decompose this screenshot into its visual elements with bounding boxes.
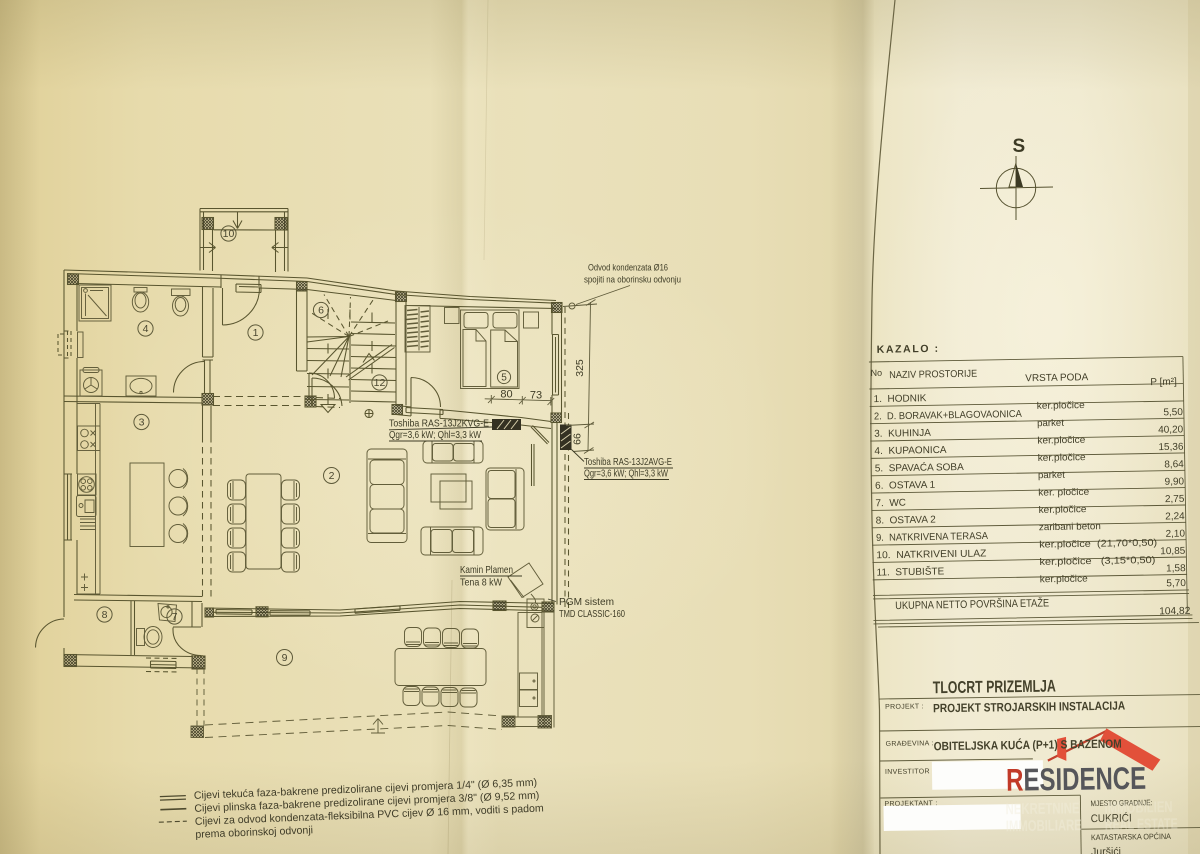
svg-text:Tena 8 kW: Tena 8 kW bbox=[460, 578, 502, 589]
svg-text:1,58: 1,58 bbox=[1166, 563, 1186, 574]
svg-text:2,75: 2,75 bbox=[1165, 494, 1185, 505]
svg-text:IMMOBILIEN: IMMOBILIEN bbox=[1104, 799, 1172, 817]
svg-text:73: 73 bbox=[530, 389, 542, 401]
svg-text:10. NATKRIVENI ULAZ: 10. NATKRIVENI ULAZ bbox=[876, 548, 986, 561]
svg-text:Toshiba RAS-13J2AVG-E: Toshiba RAS-13J2AVG-E bbox=[584, 457, 672, 468]
svg-text:ker.pločice: ker.pločice bbox=[1037, 400, 1085, 412]
svg-text:ker.pločice (21,70*0,50): ker.pločice (21,70*0,50) bbox=[1039, 538, 1157, 551]
svg-text:zaribani beton: zaribani beton bbox=[1039, 521, 1101, 533]
svg-text:Qgr=3,6 kW; Qhl=3,3 kW: Qgr=3,6 kW; Qhl=3,3 kW bbox=[389, 430, 481, 441]
svg-text:VRSTA PODA: VRSTA PODA bbox=[1025, 372, 1089, 384]
svg-text:ker.pločice: ker.pločice bbox=[1038, 504, 1086, 516]
svg-text:ker.pločice: ker.pločice bbox=[1038, 452, 1086, 464]
svg-text:40,20: 40,20 bbox=[1158, 424, 1184, 435]
svg-text:15,36: 15,36 bbox=[1158, 442, 1184, 453]
svg-text:12: 12 bbox=[374, 377, 386, 389]
svg-text:7: 7 bbox=[172, 611, 178, 623]
svg-text:TMD CLASSIC-160: TMD CLASSIC-160 bbox=[559, 609, 625, 620]
svg-text:10: 10 bbox=[223, 228, 235, 240]
svg-text:Odvod kondenzata Ø16: Odvod kondenzata Ø16 bbox=[588, 263, 668, 273]
svg-text:parket: parket bbox=[1038, 470, 1065, 481]
svg-text:8,64: 8,64 bbox=[1164, 459, 1184, 470]
svg-text:3: 3 bbox=[139, 417, 145, 429]
svg-text:5: 5 bbox=[501, 373, 507, 384]
svg-text:9: 9 bbox=[282, 652, 288, 664]
svg-text:Kamin Plamen: Kamin Plamen bbox=[460, 565, 513, 576]
svg-text:4. KUPAONICA: 4. KUPAONICA bbox=[874, 445, 947, 457]
svg-text:5,70: 5,70 bbox=[1166, 578, 1186, 589]
svg-text:NAZIV PROSTORIJE: NAZIV PROSTORIJE bbox=[889, 369, 977, 382]
svg-text:REAL ESTATE: REAL ESTATE bbox=[1105, 816, 1178, 834]
svg-text:66: 66 bbox=[572, 433, 584, 445]
svg-text:2,10: 2,10 bbox=[1165, 529, 1185, 540]
svg-text:PROJEKT :: PROJEKT : bbox=[885, 703, 924, 711]
svg-text:1. HODNIK: 1. HODNIK bbox=[874, 393, 927, 405]
svg-text:ker.pločice: ker.pločice bbox=[1040, 574, 1088, 586]
svg-text:OBITELJSKA KUĆA (P+1) S BAZENO: OBITELJSKA KUĆA (P+1) S BAZENOM bbox=[934, 736, 1122, 754]
svg-text:P [m²]: P [m²] bbox=[1150, 377, 1177, 388]
svg-text:parket: parket bbox=[1037, 418, 1064, 429]
svg-text:8: 8 bbox=[102, 609, 108, 621]
svg-text:RESIDENCE: RESIDENCE bbox=[1006, 760, 1146, 798]
svg-text:IMMOBILIARE: IMMOBILIARE bbox=[1006, 817, 1082, 835]
svg-text:104,82: 104,82 bbox=[1159, 606, 1191, 618]
svg-text:Qgr=3,6 kW; Qhl=3,3 kW: Qgr=3,6 kW; Qhl=3,3 kW bbox=[584, 469, 668, 480]
svg-text:7. WC: 7. WC bbox=[875, 498, 906, 510]
svg-text:1: 1 bbox=[253, 327, 259, 339]
svg-text:5,50: 5,50 bbox=[1163, 407, 1183, 418]
svg-text:9. NATKRIVENA TERASA: 9. NATKRIVENA TERASA bbox=[876, 531, 988, 544]
svg-text:GRAĐEVINA :: GRAĐEVINA : bbox=[886, 740, 934, 748]
svg-text:PROJEKT STROJARSKIH INSTALACIJ: PROJEKT STROJARSKIH INSTALACIJA bbox=[933, 699, 1125, 716]
svg-text:8. OSTAVA 2: 8. OSTAVA 2 bbox=[876, 515, 937, 527]
svg-text:325: 325 bbox=[574, 359, 586, 377]
svg-text:6: 6 bbox=[318, 305, 324, 317]
svg-text:ker.pločice (3,15*0,50): ker.pločice (3,15*0,50) bbox=[1039, 555, 1155, 568]
svg-text:INVESTITOR :: INVESTITOR : bbox=[885, 768, 934, 776]
svg-text:S: S bbox=[1013, 136, 1026, 157]
svg-text:3. KUHINJA: 3. KUHINJA bbox=[874, 428, 931, 440]
svg-text:11. STUBIŠTE: 11. STUBIŠTE bbox=[876, 564, 944, 578]
svg-text:ker.pločice: ker.pločice bbox=[1037, 435, 1085, 447]
svg-text:4: 4 bbox=[143, 323, 149, 335]
svg-text:9,90: 9,90 bbox=[1165, 476, 1185, 487]
svg-text:KAZALO :: KAZALO : bbox=[877, 343, 940, 356]
svg-text:ker. pločice: ker. pločice bbox=[1038, 487, 1089, 499]
svg-text:NEKRETNINE: NEKRETNINE bbox=[1005, 800, 1079, 818]
svg-text:80: 80 bbox=[500, 388, 512, 400]
svg-text:10,85: 10,85 bbox=[1160, 546, 1186, 557]
svg-text:2: 2 bbox=[329, 470, 335, 482]
svg-text:spojiti na oborinsku odvonju: spojiti na oborinsku odvonju bbox=[584, 275, 681, 285]
svg-text:UKUPNA NETTO POVRŠINA ETAŽE: UKUPNA NETTO POVRŠINA ETAŽE bbox=[895, 596, 1049, 612]
svg-text:Juršići: Juršići bbox=[1091, 846, 1121, 854]
svg-text:No: No bbox=[871, 368, 883, 378]
svg-text:2,24: 2,24 bbox=[1165, 511, 1185, 522]
svg-text:TLOCRT PRIZEMLJA: TLOCRT PRIZEMLJA bbox=[933, 677, 1056, 698]
svg-text:PGM sistem: PGM sistem bbox=[559, 597, 614, 608]
svg-text:6. OSTAVA 1: 6. OSTAVA 1 bbox=[875, 480, 936, 492]
